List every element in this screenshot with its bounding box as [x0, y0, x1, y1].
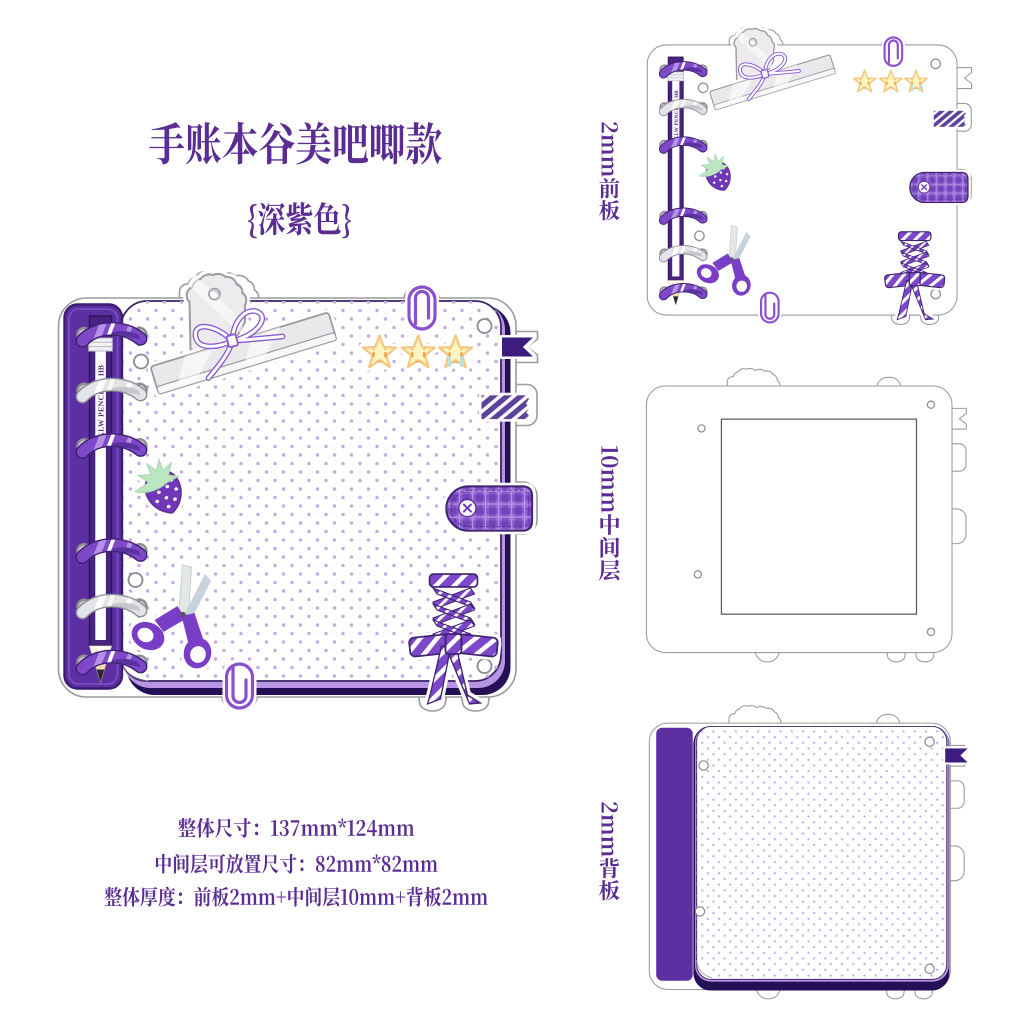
svg-text:HB: HB [674, 90, 680, 98]
svg-text:HB: HB [97, 365, 106, 376]
